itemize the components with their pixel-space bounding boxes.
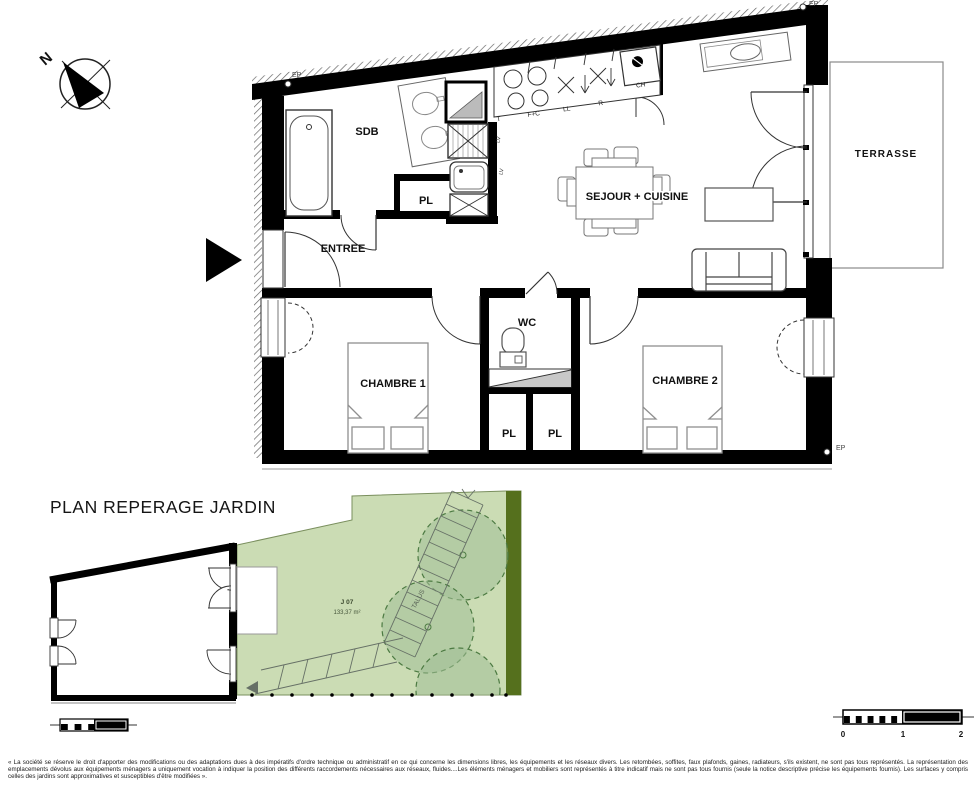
chambre2-bed-icon (643, 346, 722, 453)
ep-circle (824, 449, 830, 455)
wall-right-upper (806, 5, 828, 85)
mini-terrasse (237, 567, 277, 634)
scale-tick-0: 0 (841, 730, 846, 739)
scale-bar-small (50, 719, 137, 731)
hedge-strip (506, 491, 521, 695)
water-heater-icon (620, 47, 660, 86)
room-label-sejour: SEJOUR + CUISINE (586, 191, 688, 203)
scale-tick-2: 2 (959, 730, 964, 739)
ep-circle (800, 4, 806, 10)
wall-hatch-left (254, 86, 262, 458)
room-label-terrasse: TERRASSE (855, 149, 917, 160)
scale-tick-1: 1 (901, 730, 906, 739)
ep-label-top-left: EP (292, 72, 302, 79)
room-label-wc: WC (518, 317, 536, 329)
floor-plan-drawing: TALUS (0, 0, 976, 800)
ep-label-bottom-right: EP (836, 445, 846, 452)
ep-label-top-right: EP (809, 1, 819, 8)
appliance-label-ll: LL (563, 105, 572, 113)
tv-cabinet-icon (705, 188, 773, 221)
appliance-label-ch: CH (636, 81, 647, 89)
garden-plan-title: PLAN REPERAGE JARDIN (50, 497, 276, 517)
wall-right-mid (806, 258, 832, 318)
terrasse-area (830, 62, 943, 268)
room-label-entree: ENTREE (321, 243, 366, 255)
ep-circle (285, 81, 291, 87)
floor-plan-page: TALUS (0, 0, 976, 800)
sofa-icon (692, 249, 786, 291)
room-label-pl-bath: PL (419, 195, 433, 207)
chambre1-bed-icon (348, 343, 428, 453)
legal-disclaimer: « La société se réserve le droit d'appor… (8, 760, 968, 780)
shower-icon (448, 124, 488, 158)
room-label-pl-left: PL (502, 428, 516, 440)
bathtub-icon (286, 110, 332, 216)
washbasin-icon (450, 162, 488, 192)
room-label-sdb: SDB (355, 126, 378, 138)
room-label-chambre1: CHAMBRE 1 (360, 378, 425, 390)
garden-lot-area: 133,37 m² (333, 610, 360, 616)
duct-shaft (446, 82, 486, 122)
garden-lot-id: J 07 (341, 599, 354, 606)
room-label-pl-right: PL (548, 428, 562, 440)
wall-left-upper (262, 96, 284, 230)
room-label-chambre2: CHAMBRE 2 (652, 375, 717, 387)
wall-left-lower (262, 357, 284, 464)
wc-counter (489, 369, 571, 387)
toilet-icon (500, 328, 526, 367)
washer-icon (450, 194, 488, 216)
wall-left-mid (262, 288, 284, 298)
